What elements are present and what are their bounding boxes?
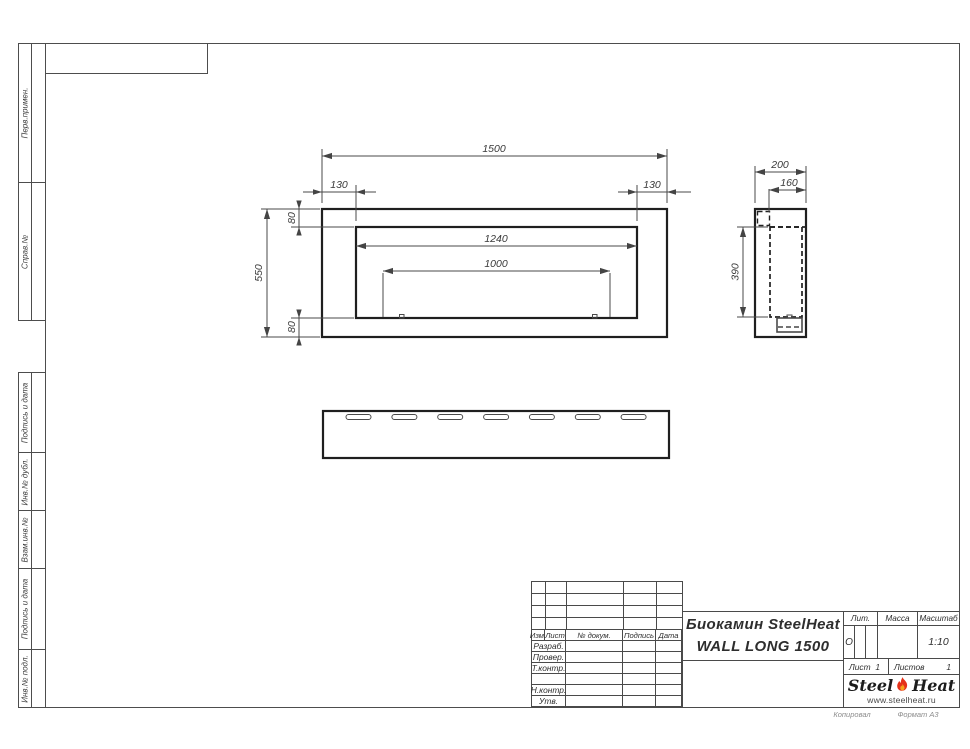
tb-cell <box>656 641 682 652</box>
tb-cell <box>623 663 656 674</box>
sheets-cell: Листов 1 <box>888 658 960 675</box>
tb-header-list: Лист <box>545 630 566 641</box>
tb-cell <box>566 696 623 707</box>
company-logo-cell: Steel Heat www.steelheat.ru <box>843 674 960 708</box>
vent-slot <box>575 415 600 420</box>
dim-front-height: 550 <box>253 209 267 337</box>
sheet-label: Лист <box>849 662 871 672</box>
vent-slots <box>346 415 646 420</box>
dim-opening-width: 1240 <box>356 233 637 246</box>
scale-value: 1:10 <box>917 625 960 659</box>
side-hidden-cavity <box>770 227 802 317</box>
logo-steel-text: Steel <box>848 678 893 694</box>
title-block-left-table: Изм. Лист № докум. Подпись Дата Разраб. … <box>531 629 683 708</box>
vent-slot <box>438 415 463 420</box>
front-view: 1500 550 1240 1000 130 <box>253 143 691 346</box>
tb-row-blank <box>532 674 566 685</box>
svg-text:1240: 1240 <box>484 233 508 245</box>
tb-row-utv: Утв. <box>532 696 566 707</box>
dim-side-inner-height: 390 <box>730 227 744 317</box>
lit-cell-2 <box>855 626 866 658</box>
tb-cell <box>656 696 682 707</box>
sheets-label: Листов <box>894 662 925 672</box>
sheet-value: 1 <box>875 662 880 672</box>
mass-header: Масса <box>877 611 918 626</box>
dim-inset-right: 130 <box>618 179 691 195</box>
svg-text:390: 390 <box>730 263 742 281</box>
tb-row-prover: Провер. <box>532 652 566 663</box>
dim-side-depth: 200 <box>755 159 806 172</box>
svg-text:1000: 1000 <box>484 258 508 270</box>
vent-slot <box>346 415 371 420</box>
tb-cell <box>623 685 656 696</box>
material-cell <box>682 660 844 708</box>
vent-slot <box>484 415 509 420</box>
svg-text:1500: 1500 <box>482 143 506 155</box>
drawing-title: Биокамин SteelHeat WALL LONG 1500 <box>682 611 844 661</box>
drawing-title-line2: WALL LONG 1500 <box>697 636 830 658</box>
lit-value-cells: О <box>843 625 878 659</box>
lit-header: Лит. <box>843 611 878 626</box>
svg-text:200: 200 <box>770 159 789 171</box>
vent-slot <box>392 415 417 420</box>
tb-row-tkontr: Т.контр. <box>532 663 566 674</box>
tb-cell <box>623 674 656 685</box>
flame-icon <box>896 677 909 694</box>
tb-cell <box>566 652 623 663</box>
dim-bottom-border: 80 <box>286 310 302 346</box>
sheet-cell: Лист 1 <box>843 658 889 675</box>
svg-text:130: 130 <box>643 179 661 191</box>
tb-cell <box>656 674 682 685</box>
tb-cell <box>566 641 623 652</box>
tb-row-razrab: Разраб. <box>532 641 566 652</box>
tb-cell <box>623 652 656 663</box>
bottom-outline <box>323 411 669 458</box>
dim-top-border: 80 <box>286 201 302 236</box>
lit-value: О <box>844 626 855 658</box>
svg-text:130: 130 <box>330 179 348 191</box>
vent-slot <box>529 415 554 420</box>
vent-slot <box>621 415 646 420</box>
svg-text:80: 80 <box>286 212 298 224</box>
svg-text:80: 80 <box>286 321 298 333</box>
logo-heat-text: Heat <box>912 678 955 694</box>
lit-cell-3 <box>866 626 877 658</box>
svg-text:550: 550 <box>253 264 265 282</box>
svg-text:160: 160 <box>780 177 798 189</box>
side-burner-box <box>777 318 802 332</box>
footer-format: Формат А3 <box>873 710 963 719</box>
bottom-view <box>323 411 669 458</box>
tb-cell <box>566 685 623 696</box>
sheets-value: 1 <box>946 662 951 672</box>
tb-cell <box>566 674 623 685</box>
steelheat-logo: Steel Heat <box>848 677 955 694</box>
mass-value <box>877 625 918 659</box>
tb-header-doc: № докум. <box>566 630 623 641</box>
dim-inset-left: 130 <box>303 179 376 195</box>
dim-front-width: 1500 <box>322 143 667 156</box>
scale-header: Масштаб <box>917 611 960 626</box>
tb-header-podpis: Подпись <box>623 630 656 641</box>
side-view: 200 160 390 <box>730 159 807 337</box>
tb-cell <box>623 696 656 707</box>
drawing-sheet: Перв.примен. Справ.№ Подпись и дата Инв.… <box>0 0 970 749</box>
revision-table <box>531 581 683 630</box>
tb-cell <box>623 641 656 652</box>
tb-cell <box>656 685 682 696</box>
dim-burner-width: 1000 <box>383 258 610 271</box>
tb-header-data: Дата <box>656 630 682 641</box>
logo-url: www.steelheat.ru <box>867 695 936 705</box>
tb-row-nkontr: Н.контр. <box>532 685 566 696</box>
tb-cell <box>656 663 682 674</box>
dim-side-inner-depth: 160 <box>769 177 806 190</box>
tb-header-izm: Изм. <box>532 630 545 641</box>
tb-cell <box>566 663 623 674</box>
side-hidden-bracket <box>758 212 770 226</box>
drawing-title-line1: Биокамин SteelHeat <box>686 614 840 636</box>
tb-cell <box>656 652 682 663</box>
